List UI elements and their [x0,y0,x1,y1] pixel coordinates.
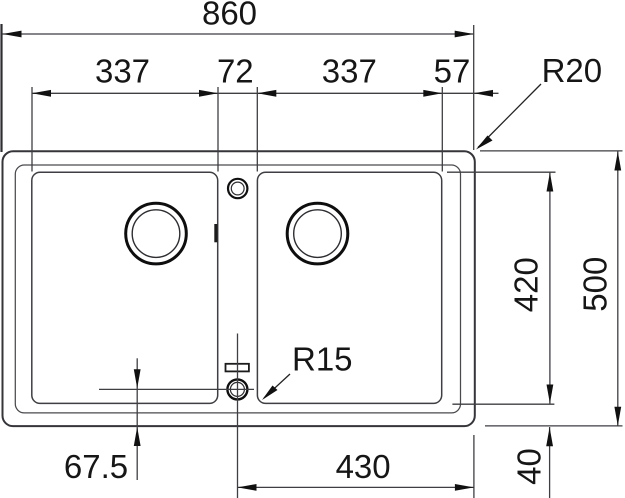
svg-text:860: 860 [202,0,257,31]
svg-text:337: 337 [95,52,150,89]
svg-text:R20: R20 [542,52,603,89]
svg-text:337: 337 [322,52,377,89]
svg-text:40: 40 [510,448,547,485]
svg-text:420: 420 [507,257,544,312]
svg-text:57: 57 [434,52,471,89]
svg-text:430: 430 [336,448,391,485]
svg-text:72: 72 [217,52,254,89]
svg-text:R15: R15 [292,341,353,378]
svg-text:500: 500 [577,257,614,312]
svg-text:67.5: 67.5 [64,448,128,485]
